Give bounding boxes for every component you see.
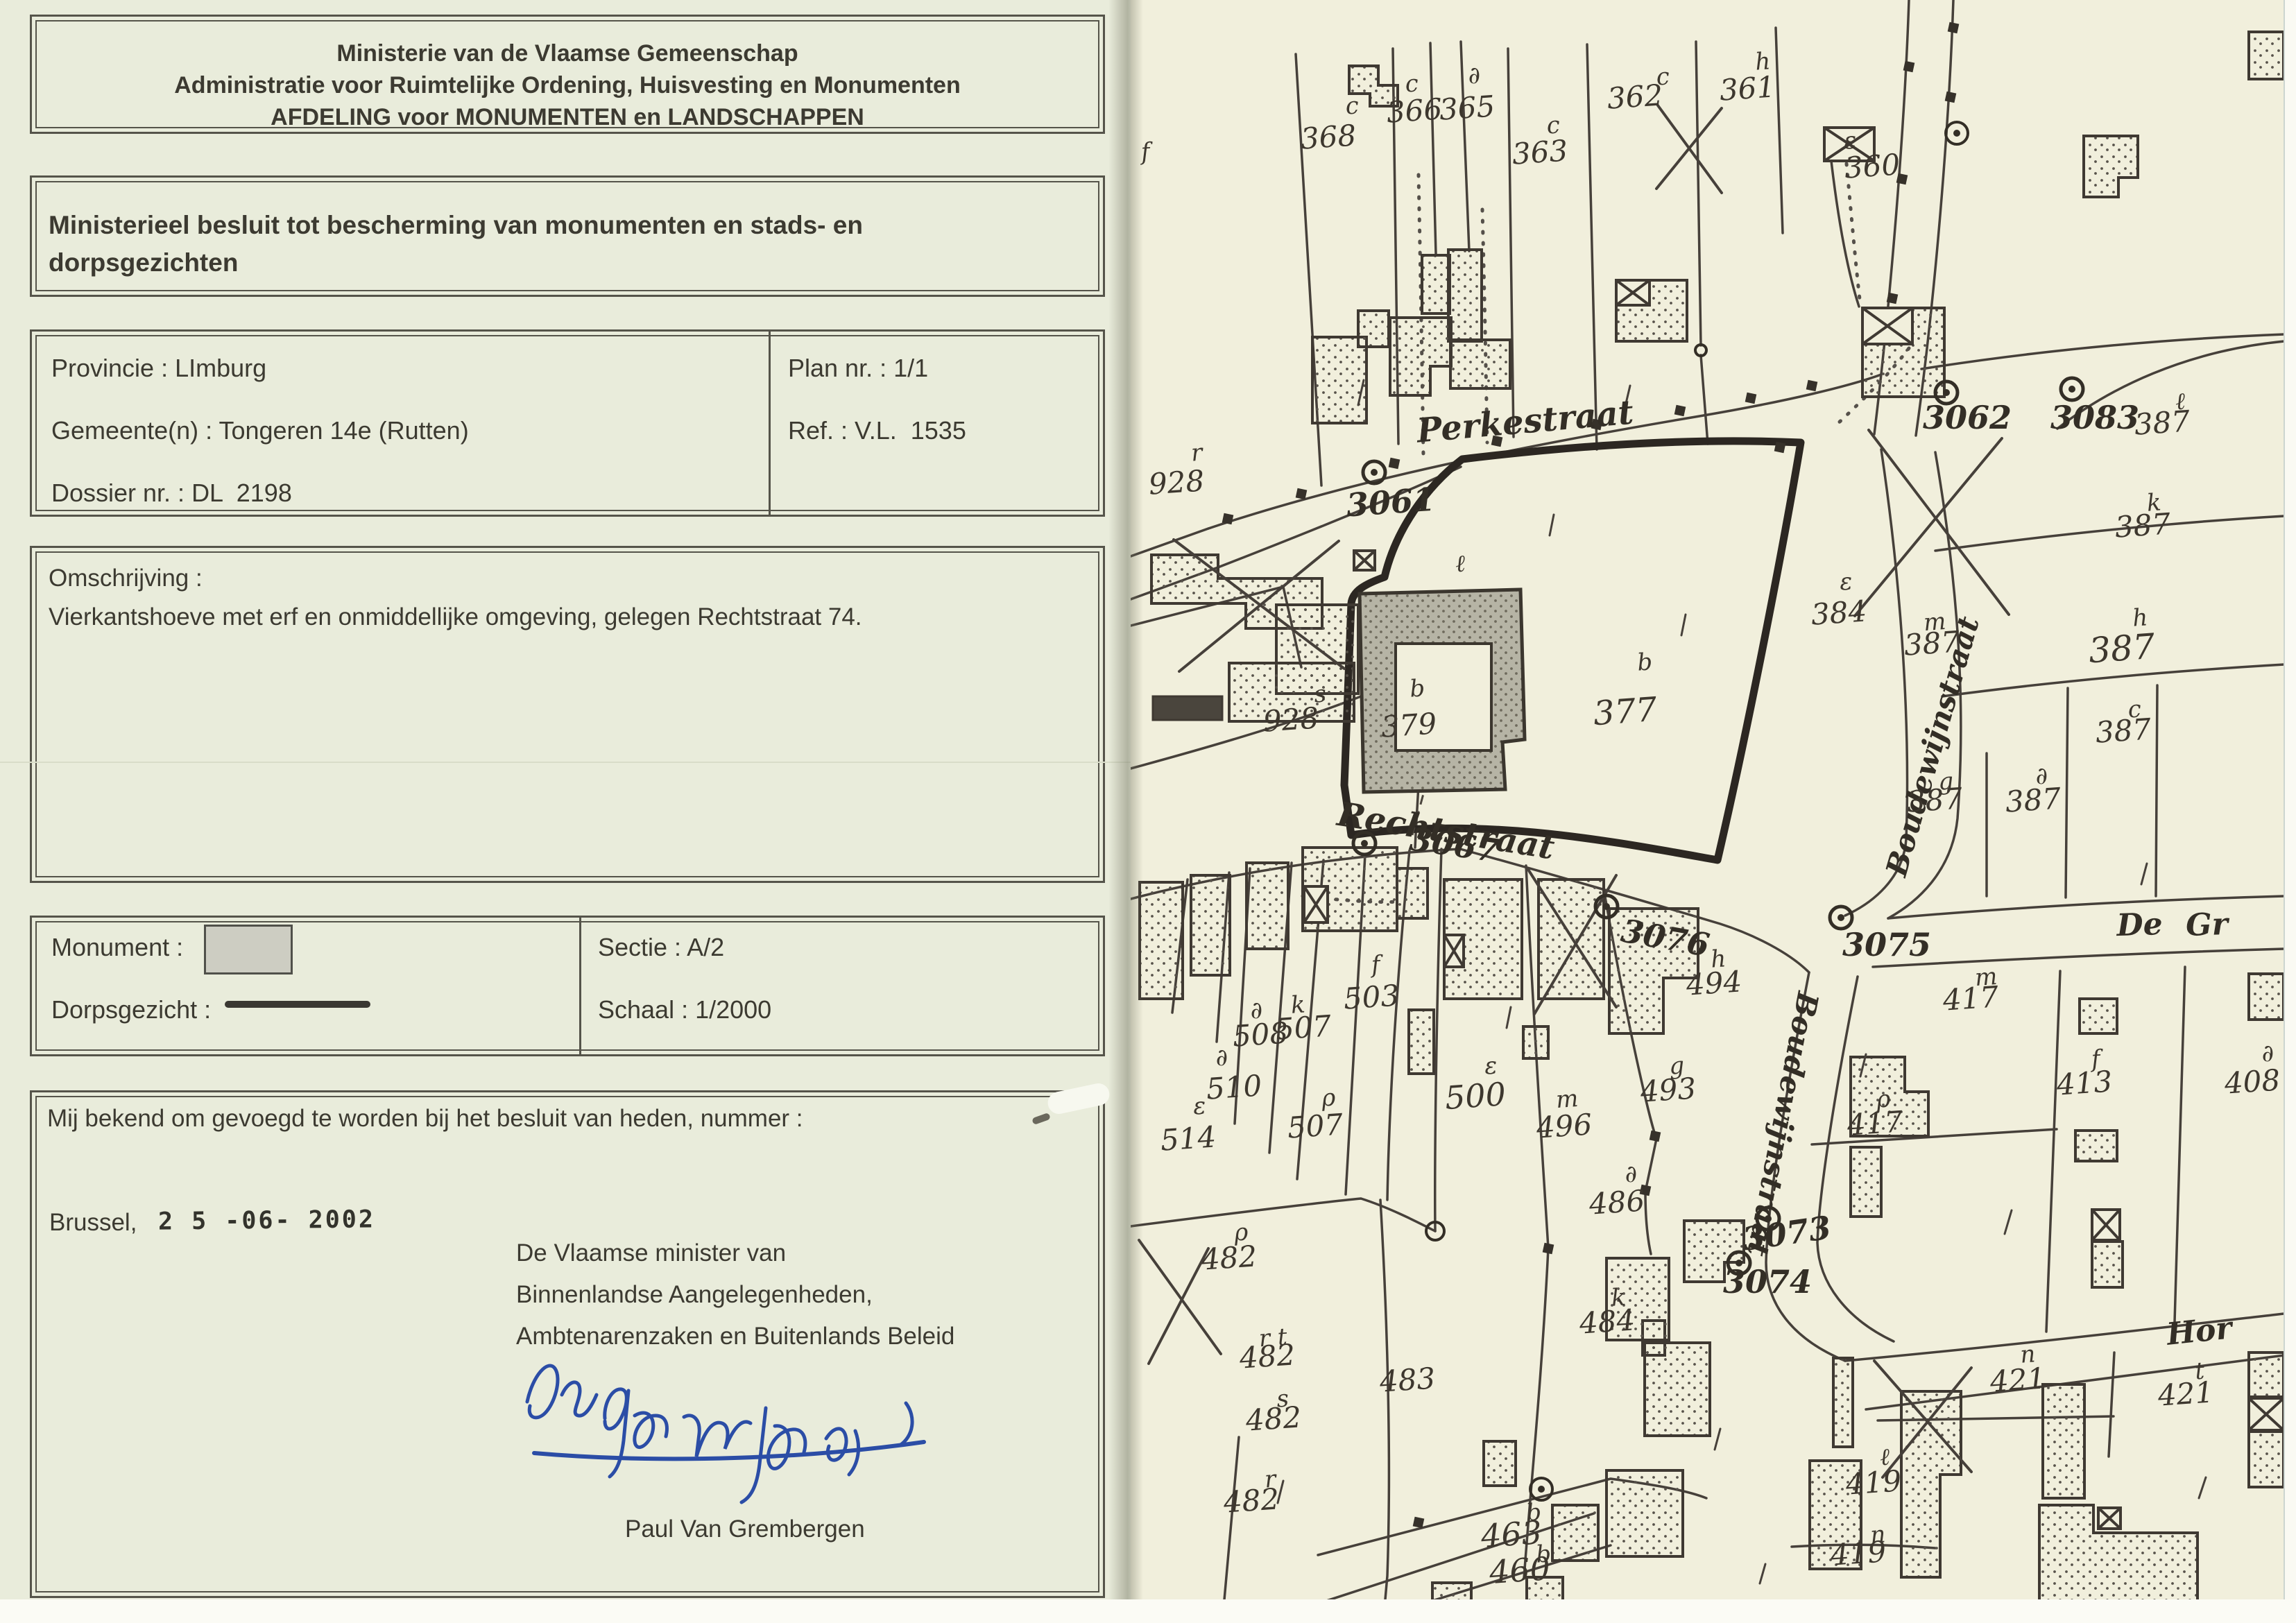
ref-value: V.L. 1535 bbox=[855, 416, 966, 445]
parcel-letter: r bbox=[1190, 438, 1205, 467]
identification-divider bbox=[769, 332, 771, 515]
signatory-name: Paul Van Grembergen bbox=[625, 1515, 865, 1543]
parcel-number: 379 bbox=[1380, 706, 1437, 744]
parcel-letter: ∂ bbox=[1215, 1043, 1228, 1072]
parcel-letter: f bbox=[1369, 950, 1385, 979]
decree-document: Ministerie van de Vlaamse Gemeenschap Ad… bbox=[0, 0, 1131, 1623]
minister-line-2: Binnenlandse Aangelegenheden, bbox=[516, 1274, 954, 1316]
signature-ink bbox=[527, 1366, 924, 1502]
header-line-1: Ministerie van de Vlaamse Gemeenschap bbox=[32, 37, 1103, 69]
header-line-3: AFDELING voor MONUMENTEN en LANDSCHAPPEN bbox=[32, 101, 1103, 133]
boundary-post-square bbox=[1296, 488, 1308, 500]
dorpsgezicht-label: Dorpsgezicht : bbox=[51, 995, 211, 1024]
ref-label: Ref. : bbox=[788, 416, 855, 445]
parcel-letter: b bbox=[1409, 674, 1426, 703]
parcel-letter: b bbox=[1636, 648, 1654, 676]
cadastral-map-page: PerkestraatRechtstraatBoudewijnstraatBou… bbox=[1131, 0, 2296, 1623]
parcel-letter: b bbox=[1535, 1540, 1552, 1568]
identification-box: Provincie : LImburg Gemeente(n) : Tonger… bbox=[30, 329, 1105, 517]
parcel-number: 500 bbox=[1443, 1075, 1507, 1117]
parcel-letter: c bbox=[1404, 69, 1419, 98]
parcel-letter: ∂ bbox=[1249, 996, 1263, 1024]
parcel-number: 365 bbox=[1438, 89, 1496, 126]
crossed-box bbox=[2249, 1398, 2284, 1430]
sectie-field: Sectie : A/2 bbox=[598, 933, 724, 962]
parcel-letter: ε bbox=[1839, 567, 1853, 596]
survey-marker-number: 3062 bbox=[1923, 399, 2012, 436]
gemeente-value: Tongeren 14e (Rutten) bbox=[219, 416, 468, 445]
scan-edge-right bbox=[2284, 0, 2296, 1623]
omschrijving-label: Omschrijving : bbox=[49, 559, 1034, 598]
legend-divider bbox=[579, 918, 581, 1054]
parcel-letter: h bbox=[1710, 945, 1727, 973]
survey-marker-dot bbox=[1371, 469, 1378, 476]
sectie-value: A/2 bbox=[687, 933, 724, 961]
header-line-2: Administratie voor Ruimtelijke Ordening,… bbox=[32, 69, 1103, 101]
dorpsgezicht-line-swatch bbox=[225, 1001, 370, 1008]
omschrijving-text: Vierkantshoeve met erf en onmiddellijke … bbox=[49, 598, 1034, 637]
parcel-number: 421 bbox=[2156, 1375, 2214, 1413]
boundary-post-square bbox=[1887, 293, 1899, 304]
crossed-box bbox=[1444, 935, 1464, 967]
crossed-box bbox=[1616, 280, 1650, 305]
boundary-post-square bbox=[1774, 442, 1786, 454]
parcel-letter: g bbox=[1668, 1051, 1686, 1080]
parcel-letter: ε bbox=[1192, 1092, 1207, 1120]
parcel-number: 384 bbox=[1810, 594, 1867, 631]
parcel-number: 421 bbox=[1988, 1361, 2046, 1399]
title-box: Ministerieel besluit tot bescherming van… bbox=[30, 175, 1105, 297]
parcel-number: 483 bbox=[1378, 1361, 1436, 1399]
parcel-letter: k bbox=[2146, 488, 2162, 517]
street-label: Hor bbox=[2164, 1310, 2236, 1352]
boundary-post-square bbox=[1903, 61, 1915, 73]
street-label: Gr bbox=[2185, 907, 2230, 943]
parcel-letter: g bbox=[1937, 767, 1955, 796]
boundary-post-square bbox=[1948, 22, 1960, 34]
parcel-number: 413 bbox=[2055, 1064, 2113, 1102]
gemeente-label: Gemeente(n) : bbox=[51, 416, 219, 445]
closing-box: Mij bekend om gevoegd te worden bij het … bbox=[30, 1090, 1105, 1598]
boundary-post-square bbox=[1413, 1517, 1425, 1529]
provincie-value: LImburg bbox=[175, 354, 266, 382]
cadastral-map: PerkestraatRechtstraatBoudewijnstraatBou… bbox=[1131, 0, 2296, 1623]
parcel-number: 503 bbox=[1342, 978, 1400, 1015]
parcel-number: 387 bbox=[2087, 626, 2156, 671]
boundary-circle-dot bbox=[1538, 1486, 1545, 1493]
parcel-number: 928 bbox=[1262, 701, 1319, 738]
parcel-number: 377 bbox=[1592, 690, 1659, 733]
parcel-number: 514 bbox=[1159, 1119, 1217, 1157]
crossed-box bbox=[1304, 886, 1328, 922]
parcel-letter: ∂ bbox=[1624, 1160, 1638, 1188]
parcel-letter: n bbox=[1869, 1520, 1887, 1549]
parcel-letter: m bbox=[1555, 1085, 1579, 1114]
parcel-number: 507 bbox=[1286, 1107, 1344, 1144]
crossed-box bbox=[1862, 308, 1912, 344]
legend-box: Monument : Dorpsgezicht : Sectie : A/2 S… bbox=[30, 916, 1105, 1056]
scanned-decree-page: Ministerie van de Vlaamse Gemeenschap Ad… bbox=[0, 0, 2296, 1623]
parcel-letter: ρ bbox=[1875, 1085, 1892, 1113]
boundary-post-square bbox=[1674, 405, 1686, 417]
provincie-label: Provincie : bbox=[51, 354, 175, 382]
place-label: Brussel, bbox=[49, 1209, 137, 1237]
parcel-letter: ε bbox=[1484, 1051, 1498, 1080]
known-line: Mij bekend om gevoegd te worden bij het … bbox=[47, 1105, 803, 1133]
parcel-letter: c bbox=[1344, 92, 1360, 120]
signature bbox=[511, 1342, 982, 1522]
monument-label: Monument : bbox=[51, 933, 183, 962]
parcel-letter: c bbox=[1655, 62, 1670, 91]
boundary-post-square bbox=[1806, 380, 1818, 392]
boundary-post-squares bbox=[1222, 22, 1960, 1529]
parcel-letter: n bbox=[2019, 1340, 2037, 1368]
survey-marker-dot bbox=[1603, 903, 1610, 910]
parcel-number: 928 bbox=[1147, 463, 1205, 501]
boundary-post-square bbox=[1543, 1243, 1554, 1255]
survey-marker-dot bbox=[2068, 386, 2075, 393]
parcel-letter: m bbox=[1974, 963, 1998, 992]
parcel-letter: r bbox=[1264, 1465, 1278, 1493]
monument-swatch bbox=[204, 925, 293, 974]
survey-marker-number: 3061 bbox=[1345, 481, 1436, 524]
schaal-field: Schaal : 1/2000 bbox=[598, 995, 771, 1024]
date-stamp: 2 5 -06- 2002 bbox=[158, 1205, 375, 1235]
street-label: De bbox=[2115, 907, 2164, 943]
dossier-label: Dossier nr. : bbox=[51, 479, 191, 507]
parcel-letter: s bbox=[1276, 1384, 1290, 1413]
omschrijving-box: Omschrijving : Vierkantshoeve met erf en… bbox=[30, 546, 1105, 883]
survey-marker-number: 3083 bbox=[2050, 399, 2139, 436]
survey-marker-number: 3074 bbox=[1723, 1263, 1812, 1300]
paper-fold-line bbox=[0, 762, 1131, 763]
parcel-letter: ε bbox=[1843, 126, 1858, 155]
parcel-letter: k bbox=[1290, 990, 1306, 1019]
protected-monument-building bbox=[1360, 590, 1525, 792]
parcel-number: 486 bbox=[1587, 1183, 1645, 1221]
minister-line-1: De Vlaamse minister van bbox=[516, 1233, 954, 1274]
survey-marker-dot bbox=[1837, 914, 1844, 921]
ref-field: Ref. : V.L. 1535 bbox=[788, 416, 966, 445]
parcel-number: 362 bbox=[1606, 78, 1663, 115]
crossed-box bbox=[2098, 1508, 2121, 1529]
boundary-circle-dot bbox=[1953, 130, 1960, 137]
schaal-value: 1/2000 bbox=[695, 995, 771, 1024]
dossier-value: DL 2198 bbox=[191, 479, 292, 507]
parcel-letter: m bbox=[1923, 608, 1947, 637]
survey-marker-dot bbox=[1361, 840, 1368, 847]
plan-label: Plan nr. : bbox=[788, 354, 893, 382]
boundary-post-square bbox=[1650, 1131, 1661, 1142]
survey-marker bbox=[2061, 378, 2083, 400]
parcel-letter: s bbox=[1313, 680, 1327, 708]
parcel-letter: c bbox=[2127, 695, 2142, 723]
parcel-number: 493 bbox=[1638, 1071, 1697, 1109]
boundary-post-square bbox=[1222, 513, 1234, 525]
parcel-number: 417 bbox=[1845, 1104, 1904, 1142]
header-box: Ministerie van de Vlaamse Gemeenschap Ad… bbox=[30, 15, 1105, 134]
parcel-number: 482 bbox=[1244, 1400, 1302, 1438]
crossed-box bbox=[2092, 1210, 2120, 1240]
parcel-letter: r t bbox=[1258, 1323, 1289, 1353]
parcel-number: 387 bbox=[2094, 712, 2152, 749]
plan-field: Plan nr. : 1/1 bbox=[788, 354, 928, 383]
parcel-letter: ρ bbox=[1320, 1083, 1337, 1112]
parcel-letter: ℓ bbox=[1879, 1443, 1891, 1472]
crossed-box bbox=[1354, 551, 1375, 570]
dossier-field: Dossier nr. : DL 2198 bbox=[51, 479, 292, 508]
survey-marker-number: 3075 bbox=[1842, 926, 1931, 963]
boundary-post-square bbox=[1745, 393, 1757, 404]
boundary-post-square bbox=[1389, 458, 1400, 470]
parcel-number: 482 bbox=[1199, 1239, 1258, 1277]
parcel-number: 387 bbox=[2114, 506, 2172, 544]
provincie-field: Provincie : LImburg bbox=[51, 354, 266, 383]
schaal-label: Schaal : bbox=[598, 995, 695, 1024]
gemeente-field: Gemeente(n) : Tongeren 14e (Rutten) bbox=[51, 416, 469, 445]
parcel-number: 510 bbox=[1205, 1068, 1262, 1106]
document-title: Ministerieel besluit tot bescherming van… bbox=[32, 178, 971, 282]
parcel-letter: ∂ bbox=[2261, 1039, 2274, 1067]
parcel-number: 368 bbox=[1299, 118, 1357, 155]
parcel-letter: ∂ bbox=[1467, 61, 1481, 89]
parcel-number: 387 bbox=[2004, 781, 2062, 818]
parcel-letter: k bbox=[1611, 1283, 1627, 1312]
survey-marker-dot bbox=[1943, 389, 1950, 396]
parcel-letter: ∂ bbox=[2034, 762, 2048, 790]
parcel-letter: c bbox=[1545, 111, 1561, 139]
parcel-number: 408 bbox=[2222, 1063, 2281, 1101]
parcel-letter: h bbox=[1754, 47, 1772, 76]
parcel-number: 363 bbox=[1511, 133, 1568, 171]
parcel-letter: ρ bbox=[1233, 1218, 1249, 1246]
parcel-letter: ℓ bbox=[1455, 550, 1466, 578]
parcel-letter: t bbox=[2194, 1357, 2206, 1386]
parcel-letter: h bbox=[2132, 603, 2149, 632]
parcel-number: 484 bbox=[1577, 1303, 1636, 1341]
parcel-letter: b bbox=[1525, 1498, 1543, 1527]
scan-edge-bottom bbox=[0, 1599, 2296, 1623]
sectie-label: Sectie : bbox=[598, 933, 687, 961]
page-seam-shadow bbox=[1108, 0, 1143, 1623]
parcel-number: 419 bbox=[1844, 1463, 1902, 1502]
parcel-number: 387 bbox=[1905, 781, 1964, 818]
boundary-post-square bbox=[1945, 92, 1957, 103]
plan-value: 1/1 bbox=[893, 354, 928, 382]
parcel-letter: ℓ bbox=[2175, 388, 2186, 416]
